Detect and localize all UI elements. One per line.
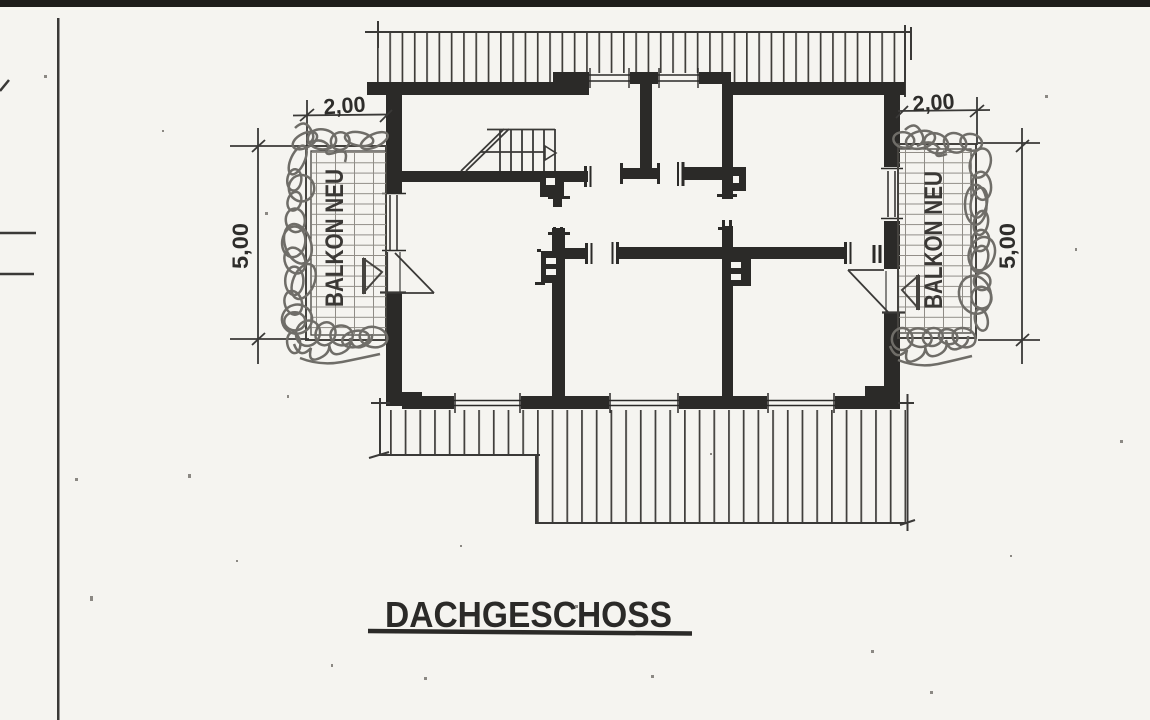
svg-text:BALKON NEU: BALKON NEU xyxy=(920,171,948,309)
svg-text:2,00: 2,00 xyxy=(323,92,367,120)
svg-text:5,00: 5,00 xyxy=(228,223,253,269)
svg-text:2,00: 2,00 xyxy=(912,89,956,117)
svg-text:5,00: 5,00 xyxy=(995,223,1020,269)
svg-text:DACHGESCHOSS: DACHGESCHOSS xyxy=(385,594,672,635)
svg-text:BALKON NEU: BALKON NEU xyxy=(321,169,349,307)
